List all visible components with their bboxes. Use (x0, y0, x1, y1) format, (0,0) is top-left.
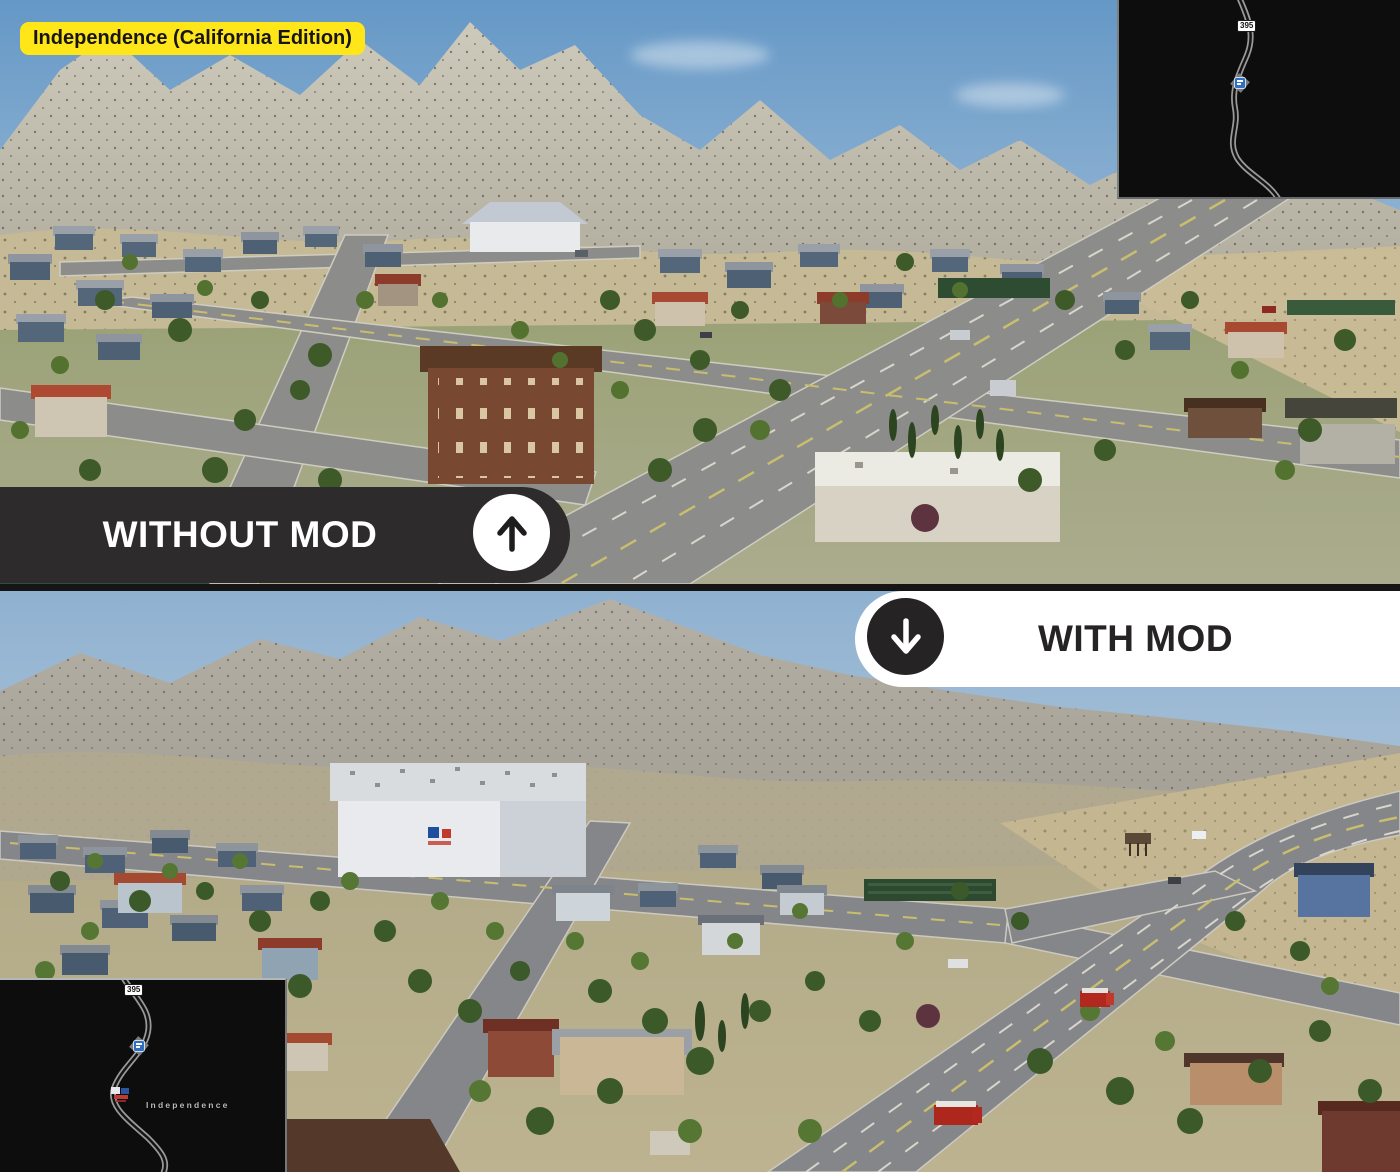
minimap-bottom-left: 395 Independence (0, 978, 287, 1172)
minimap-road (1119, 0, 1400, 197)
rest-stop-marker-icon (1229, 72, 1251, 94)
up-arrow-badge (473, 494, 550, 571)
company-marker-icon (110, 1086, 140, 1104)
hedges-and-fences (864, 879, 996, 901)
up-arrow-icon (494, 512, 530, 554)
minimap-top-right: 395 (1117, 0, 1400, 199)
route-shield: 395 (124, 984, 143, 996)
down-arrow-badge (867, 598, 944, 675)
split-divider (0, 584, 1400, 591)
down-arrow-icon (888, 616, 924, 658)
banner-without-mod: WITHOUT MOD (0, 487, 570, 583)
banner-with-mod: WITH MOD (855, 591, 1400, 687)
rest-stop-marker-icon (128, 1035, 150, 1057)
red-box-truck (934, 1101, 982, 1125)
route-shield: 395 (1237, 20, 1256, 32)
minimap-road (0, 980, 285, 1172)
minimap-town-label: Independence (146, 1100, 230, 1110)
badge-label: Independence (California Edition) (33, 27, 352, 49)
mod-comparison-image: Independence (California Edition) WITHOU… (0, 0, 1400, 1172)
map-title-badge: Independence (California Edition) (20, 22, 365, 55)
